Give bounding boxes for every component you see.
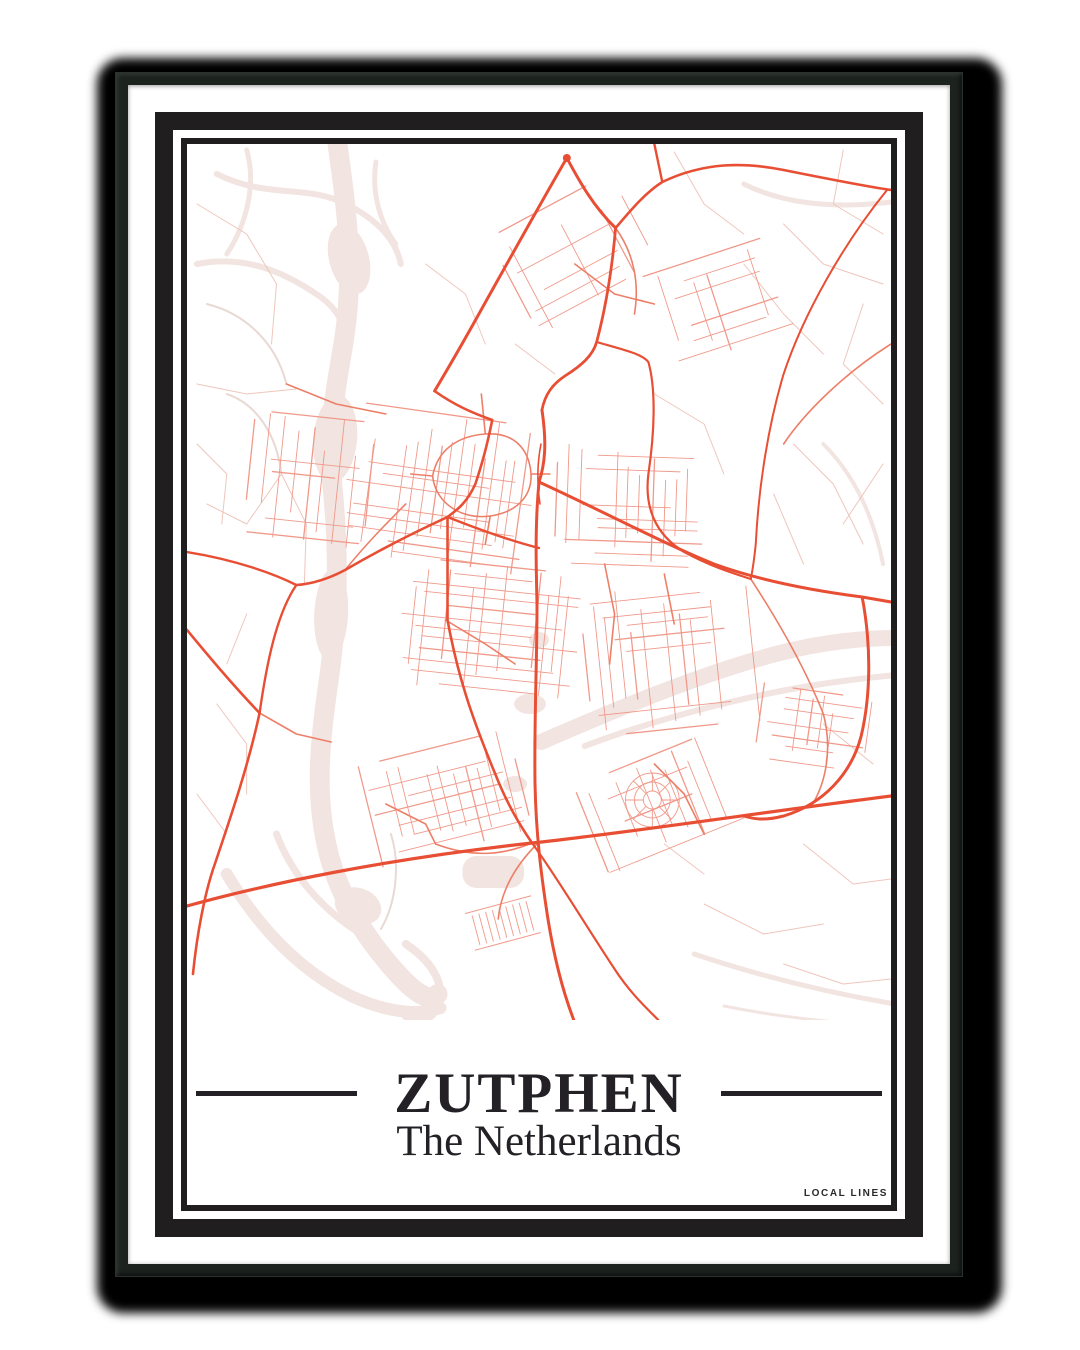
map-major-roads-layer — [187, 144, 891, 1020]
title-rule-right — [721, 1091, 882, 1096]
picture-frame: ZUTPHEN The Netherlands LOCAL LINES — [115, 72, 963, 1277]
title-row: ZUTPHEN — [187, 1065, 891, 1122]
title-rule-left — [196, 1091, 357, 1096]
poster-subtitle: The Netherlands — [187, 1120, 891, 1163]
poster-title: ZUTPHEN — [394, 1065, 684, 1122]
city-map — [187, 144, 891, 1020]
poster-content: ZUTPHEN The Netherlands LOCAL LINES — [187, 144, 891, 1205]
brand-logo: LOCAL LINES — [804, 1188, 888, 1199]
frame-mat: ZUTPHEN The Netherlands LOCAL LINES — [128, 85, 950, 1264]
page-background: ZUTPHEN The Netherlands LOCAL LINES — [0, 0, 1080, 1350]
